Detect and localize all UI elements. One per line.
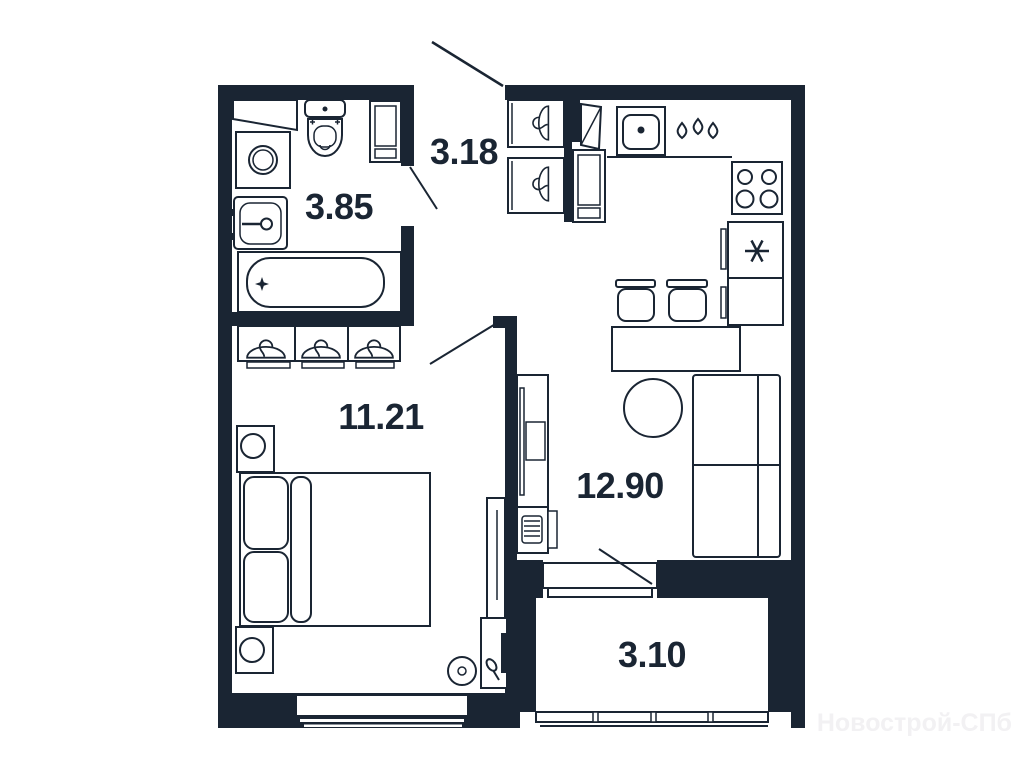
stove-icon [732, 162, 782, 214]
fridge-snowflake-icon [721, 222, 783, 278]
bathroom-bedroom-wall [218, 312, 414, 326]
bathroom-right-wall-lower [401, 226, 414, 312]
round-table-icon [624, 379, 682, 437]
pillow-icon [244, 477, 288, 549]
entry-door-swing-icon [432, 42, 503, 86]
corner-shelf-icon [233, 100, 297, 130]
water-drops-icon [678, 119, 718, 138]
toilet-icon [305, 100, 345, 156]
pouf-icon [448, 657, 476, 685]
floor-plan-drawing: 3.85 3.18 11.21 12.90 3.10 Новострой-СПб [0, 0, 1024, 768]
radiator-icon [517, 507, 557, 553]
room-area-label-hallway: 3.18 [430, 131, 498, 172]
bathroom-door-swing-icon [410, 167, 437, 209]
base-cabinet-icon [721, 278, 783, 325]
room-area-label-bathroom: 3.85 [305, 186, 374, 227]
right-wall [791, 85, 805, 728]
living-balcony-wall-left [517, 560, 543, 598]
kitchen-tall-cabinet-icon [573, 150, 605, 222]
bedroom-door-swing-icon [430, 323, 497, 364]
dining-stool-icon [667, 280, 707, 321]
washing-machine-icon [236, 132, 290, 188]
balcony-glazing-icon [536, 712, 768, 727]
room-area-label-kitchen-living: 12.90 [576, 465, 664, 506]
kitchen-furniture [607, 107, 783, 371]
bed-icon [240, 473, 430, 626]
kitchen-door-leaf-icon [581, 104, 601, 149]
top-wall-right [505, 85, 805, 100]
bathtub-icon [238, 252, 401, 312]
balcony-door-icon [543, 549, 657, 597]
nightstand-lamp-icon [237, 426, 274, 472]
sofa-icon [693, 375, 780, 557]
duvet-fold [291, 477, 311, 622]
tv-icon [520, 388, 524, 495]
watermark: Новострой-СПб [817, 709, 1012, 737]
storage-cabinet-icon [370, 101, 401, 162]
nightstand-lamp-icon [236, 627, 273, 673]
room-area-label-bedroom: 11.21 [338, 396, 424, 437]
left-wall [218, 85, 232, 728]
hall-kitchen-wall [564, 100, 572, 222]
balcony-right-wall [768, 598, 791, 712]
tv-stand-icon [517, 375, 548, 507]
wash-basin-icon [230, 197, 287, 249]
bedroom-furniture [236, 326, 507, 688]
living-balcony-wall-right [657, 560, 791, 598]
desk-icon [481, 498, 507, 688]
dining-stool-icon [616, 280, 655, 321]
bathroom-right-wall-upper [401, 100, 414, 166]
kitchen-sink-icon [617, 107, 665, 155]
room-area-label-balcony: 3.10 [618, 634, 686, 675]
dining-table-icon [612, 327, 740, 371]
kitchen-door-stub [572, 100, 580, 142]
top-wall-left [218, 85, 414, 100]
hall-wardrobe-icon [508, 100, 564, 213]
bedroom-wardrobe-icon [238, 326, 400, 368]
floor-plan-canvas: 3.85 3.18 11.21 12.90 3.10 Новострой-СПб [0, 0, 1024, 768]
pillow-icon [244, 552, 288, 622]
